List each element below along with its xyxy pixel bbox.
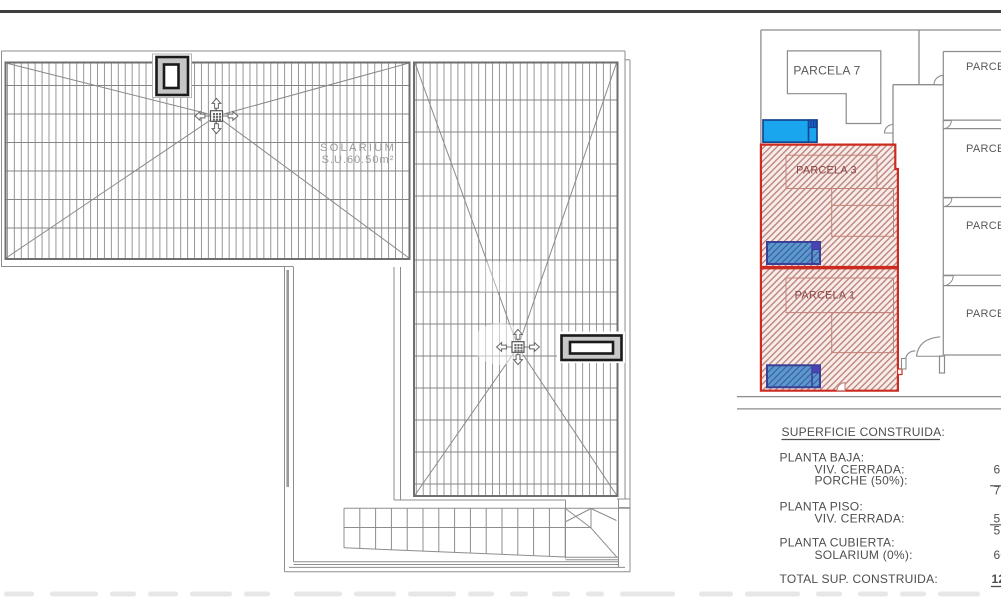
svg-text:PARCELA 1: PARCELA 1 xyxy=(795,290,856,302)
svg-text:SUPERFICIE CONSTRUIDA:: SUPERFICIE CONSTRUIDA: xyxy=(782,425,946,439)
svg-text:PARCELA 6: PARCELA 6 xyxy=(966,61,1001,73)
svg-text:65,50: 65,50 xyxy=(994,462,1001,476)
svg-text:PARCELA 3: PARCELA 3 xyxy=(796,165,857,177)
svg-text:SOLARIUM: SOLARIUM xyxy=(320,142,396,154)
svg-text:PARCELA 4: PARCELA 4 xyxy=(966,220,1001,232)
svg-text:S.U.60.50m²: S.U.60.50m² xyxy=(322,154,395,166)
svg-text:VIV. CERRADA:: VIV. CERRADA: xyxy=(815,512,905,526)
svg-text:PARCELA 2: PARCELA 2 xyxy=(966,308,1001,320)
svg-text:PORCHE (50%):: PORCHE (50%): xyxy=(815,474,908,488)
svg-text:PARCELA 7: PARCELA 7 xyxy=(793,64,860,78)
svg-text:PARCELA 5: PARCELA 5 xyxy=(966,143,1001,155)
svg-text:128: 128 xyxy=(992,572,1001,586)
svg-text:60,5: 60,5 xyxy=(994,548,1001,562)
svg-text:7,5: 7,5 xyxy=(994,484,1001,498)
svg-text:SOLARIUM (0%):: SOLARIUM (0%): xyxy=(815,548,913,562)
svg-text:5,5: 5,5 xyxy=(994,524,1001,538)
svg-text:TOTAL SUP. CONSTRUIDA:: TOTAL SUP. CONSTRUIDA: xyxy=(780,572,938,586)
